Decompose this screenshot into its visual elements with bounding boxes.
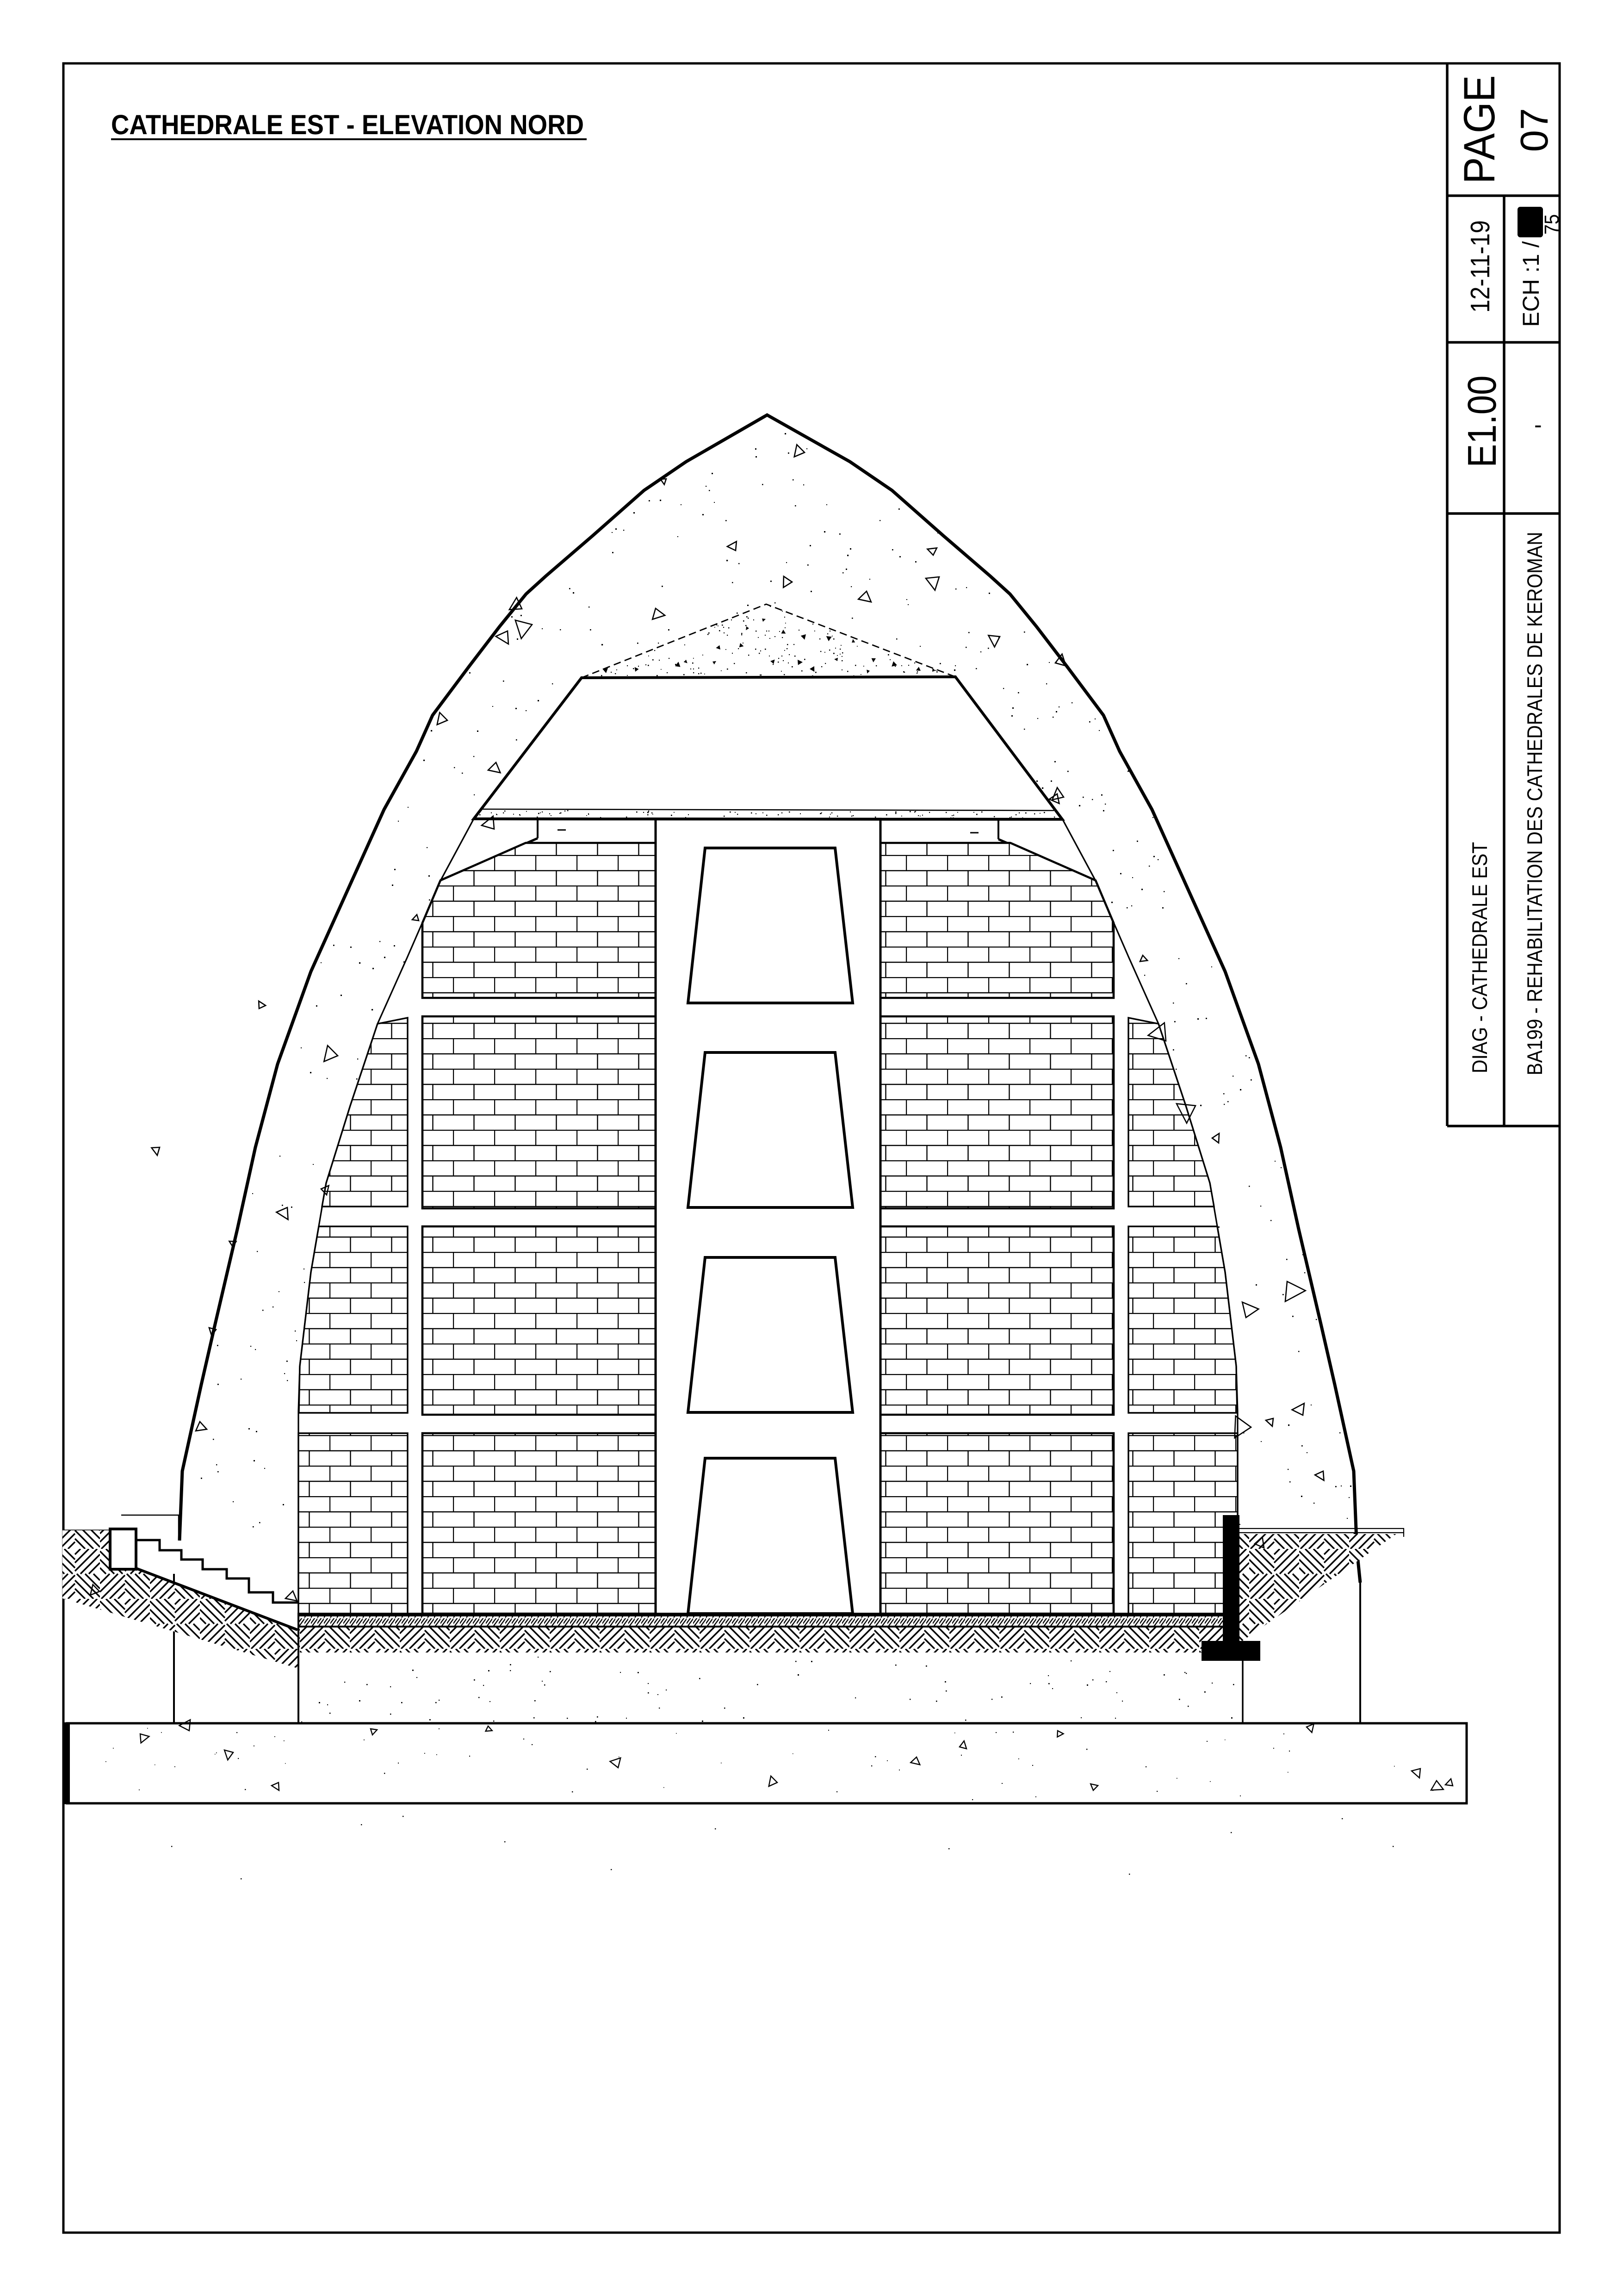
svg-text:75: 75: [1541, 214, 1563, 235]
svg-text:12-11-19: 12-11-19: [1465, 220, 1495, 313]
svg-text:E1.00: E1.00: [1460, 376, 1505, 468]
svg-text:-: -: [1534, 412, 1542, 438]
svg-text:BA199 - REHABILITATION DES CAT: BA199 - REHABILITATION DES CATHEDRALES D…: [1523, 532, 1547, 1076]
svg-text:DIAG - CATHEDRALE EST: DIAG - CATHEDRALE EST: [1468, 842, 1492, 1073]
svg-text:ECH :1 /: ECH :1 /: [1518, 241, 1544, 327]
svg-text:07: 07: [1512, 108, 1556, 152]
svg-text:CATHEDRALE EST - ELEVATION NOR: CATHEDRALE EST - ELEVATION NORD: [111, 109, 584, 140]
svg-text:PAGE: PAGE: [1455, 75, 1504, 184]
